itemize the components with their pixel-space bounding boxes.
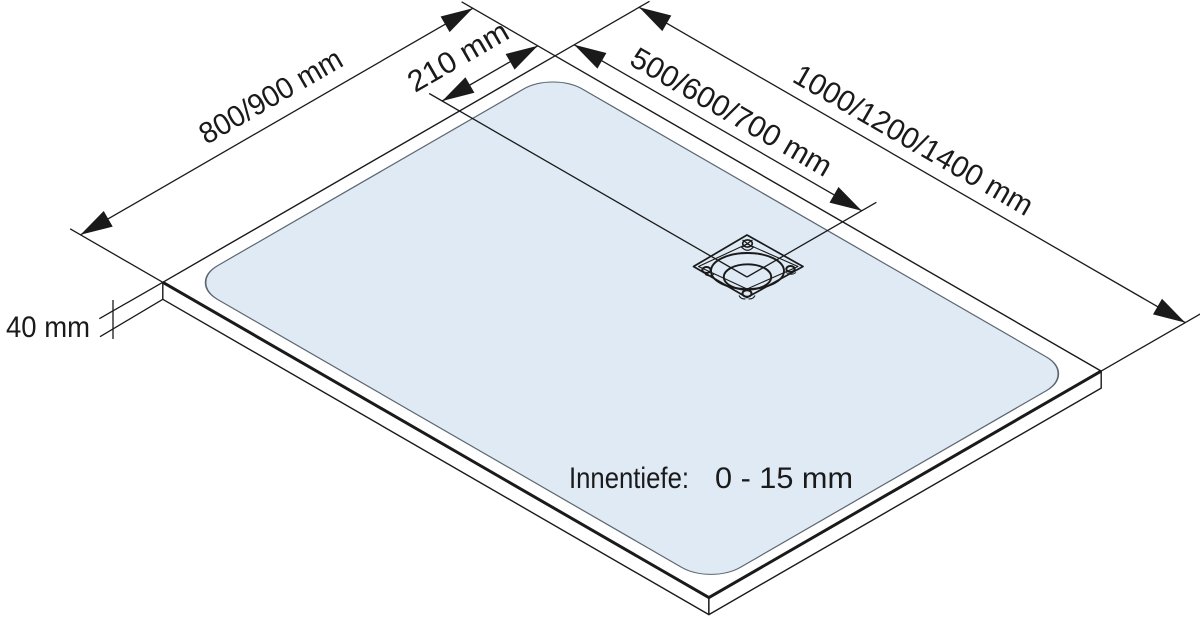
svg-text:Innentiefe:: Innentiefe:: [569, 462, 689, 495]
svg-text:40 mm: 40 mm: [6, 311, 90, 344]
svg-text:0 - 15 mm: 0 - 15 mm: [715, 462, 853, 495]
